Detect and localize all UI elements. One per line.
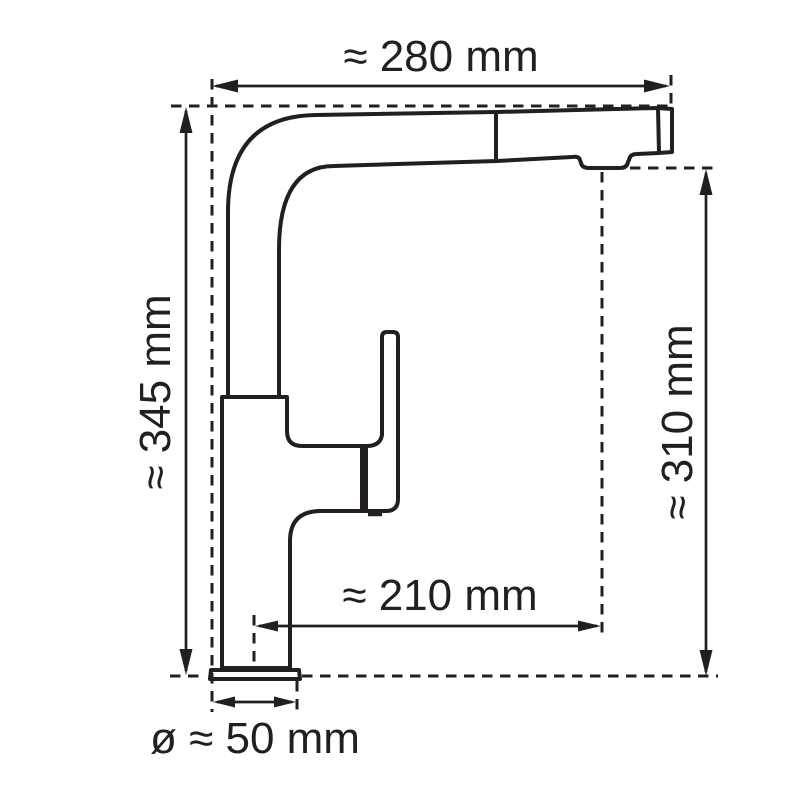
arrowhead-top: [700, 169, 713, 195]
dimension-spout-width: ≈ 280 mm: [212, 32, 670, 93]
dimension-label-outlet-height: ≈ 310 mm: [653, 324, 702, 519]
technical-drawing-canvas: ≈ 280 mm ≈ 345 mm ≈ 310 mm ≈ 210 mm ø ≈ …: [0, 0, 800, 800]
arrowhead-top: [180, 107, 193, 133]
dimension-label-base-diameter: ø ≈ 50 mm: [150, 714, 360, 763]
dimension-spout-reach: ≈ 210 mm: [255, 571, 601, 632]
arrowhead-bottom: [700, 650, 713, 676]
arrowhead-right: [644, 80, 670, 93]
dimension-outlet-height: ≈ 310 mm: [653, 169, 713, 676]
dimension-label-spout-width: ≈ 280 mm: [343, 32, 538, 81]
faucet-dimension-diagram: ≈ 280 mm ≈ 345 mm ≈ 310 mm ≈ 210 mm ø ≈ …: [0, 0, 800, 800]
dimension-label-spout-reach: ≈ 210 mm: [342, 571, 537, 620]
arrowhead-right: [578, 621, 601, 632]
spray-head-cap-line: [658, 109, 659, 153]
faucet-base-flange: [210, 670, 300, 679]
dimension-total-height: ≈ 345 mm: [131, 107, 193, 675]
dimension-base-diameter: ø ≈ 50 mm: [150, 697, 360, 764]
arrowhead-right: [274, 697, 296, 708]
arrowhead-left: [212, 80, 238, 93]
arrowhead-left: [213, 697, 235, 708]
faucet-spout-outline: [228, 108, 672, 399]
dimension-label-total-height: ≈ 345 mm: [131, 294, 180, 489]
arrowhead-bottom: [180, 649, 193, 675]
